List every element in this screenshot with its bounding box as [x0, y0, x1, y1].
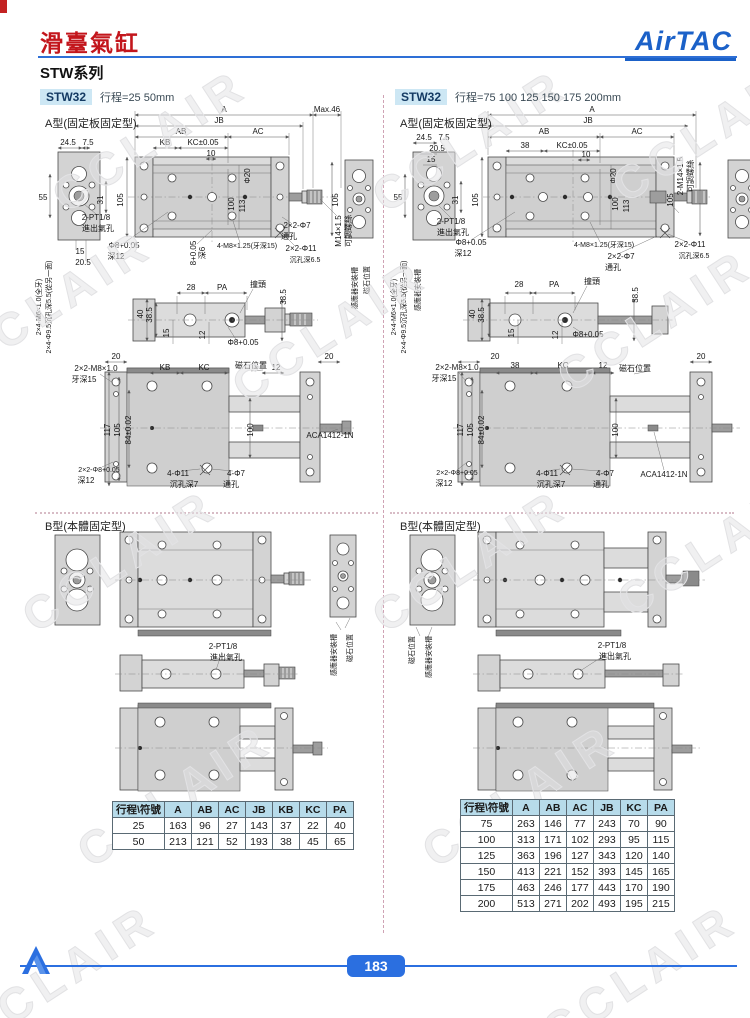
dim-label: AB	[539, 127, 550, 136]
dim-label: KC±0.05	[187, 138, 219, 147]
dim-label: AC	[631, 127, 642, 136]
dim-label: 進出氣孔	[210, 652, 242, 662]
dim-label: ACA1412-1N	[640, 470, 687, 479]
right-type-a-bottom-view	[453, 362, 740, 486]
table-cell: 65	[326, 834, 353, 850]
dim-label: 2×4-M6×1.0(全牙)	[34, 279, 43, 335]
stroke-range-right: 行程=75 100 125 150 175 200mm	[455, 92, 621, 104]
dim-label: 感應器安裝槽	[424, 636, 433, 678]
table-cell: 443	[593, 880, 620, 896]
dim-label: M14×1.5	[334, 215, 343, 247]
type-b-label-right: B型(本體固定型)	[400, 518, 481, 534]
dim-label: 牙深15	[72, 375, 97, 384]
dim-label: Φ20	[609, 168, 618, 184]
dim-label: 38	[521, 141, 530, 150]
table-cell: 145	[620, 864, 647, 880]
dim-label: 進出氣孔	[437, 227, 469, 237]
dim-label: 7.5	[438, 133, 450, 142]
dim-label: A	[221, 105, 227, 114]
dim-label: 55	[394, 193, 403, 202]
dim-label: 2-PT1/8	[437, 217, 466, 226]
table-cell: 37	[272, 818, 299, 834]
table-cell: 313	[512, 832, 539, 848]
dim-label: 感應器安裝槽	[350, 267, 359, 309]
dim-label: 2×4-Φ9.5沉孔深5.5(從另一面)	[399, 261, 408, 354]
dim-label: 28	[515, 280, 524, 289]
left-type-a-plan-view	[50, 111, 373, 261]
table-cell: 70	[620, 816, 647, 832]
dim-label: Φ8+0.05	[455, 238, 487, 247]
table-cell: 152	[566, 864, 593, 880]
dim-label: 4-Φ7	[227, 469, 245, 478]
table-cell: 143	[245, 818, 272, 834]
dim-label: 105	[466, 423, 475, 437]
table-cell: 125	[461, 848, 513, 864]
table-header-cell: JB	[593, 800, 620, 816]
table-cell: 193	[245, 834, 272, 850]
table-cell: 146	[539, 816, 566, 832]
dim-label: 20	[325, 352, 334, 361]
stroke-range-left: 行程=25 50mm	[100, 92, 174, 104]
dim-label: 10	[582, 150, 591, 159]
table-cell: 140	[647, 848, 674, 864]
table-cell: 513	[512, 896, 539, 912]
dim-label: 117	[103, 423, 112, 436]
table-cell: 95	[620, 832, 647, 848]
left-type-a-bottom-view	[100, 362, 356, 486]
dim-label: 可調螺絲	[685, 160, 695, 192]
dim-label: 可調螺絲	[343, 215, 353, 247]
dim-label: 40	[468, 309, 477, 318]
dim-label: Max.46	[314, 105, 341, 114]
table-cell: 170	[620, 880, 647, 896]
dim-label: 113	[622, 199, 631, 212]
dim-label: 117	[456, 423, 465, 436]
left-type-b-views	[55, 532, 356, 791]
dim-label: 55	[39, 193, 48, 202]
table-cell: 150	[461, 864, 513, 880]
table-cell: 293	[593, 832, 620, 848]
dim-label: 感應器安裝槽	[413, 269, 422, 311]
dim-label: 38	[511, 361, 520, 370]
dim-label: PA	[217, 283, 228, 292]
dim-label: 通孔	[605, 262, 621, 272]
table-header-cell: AC	[566, 800, 593, 816]
section-header-right: STW32行程=75 100 125 150 175 200mm	[395, 89, 621, 105]
table-header-cell: 行程\符號	[113, 802, 165, 818]
footer-logo-icon	[20, 944, 56, 976]
dim-label: 2×2-Φ8+0.05	[78, 467, 120, 474]
dim-label: 12	[551, 330, 560, 339]
table-row: 150413221152393145165	[461, 864, 675, 880]
page-corner-mark	[0, 0, 7, 13]
dim-label: 通孔	[593, 479, 609, 489]
table-cell: 393	[593, 864, 620, 880]
table-row: 175463246177443170190	[461, 880, 675, 896]
right-type-b-views	[410, 532, 705, 791]
type-a-label-right: A型(固定板固定型)	[400, 115, 492, 131]
dim-label: 2×4-Φ9.5沉孔深5.5(從另一面)	[44, 261, 53, 354]
dim-label: 24.5	[60, 138, 76, 147]
dim-label: 20.5	[75, 258, 91, 267]
dim-label: 沉孔深7	[537, 480, 566, 489]
dim-label: 沉孔深6.5	[290, 255, 321, 264]
table-cell: 463	[512, 880, 539, 896]
dim-label: 通孔	[223, 479, 239, 489]
dim-label: 深6	[198, 246, 207, 259]
table-header-cell: AC	[218, 802, 245, 818]
table-cell: 96	[191, 818, 218, 834]
table-header-cell: KC	[620, 800, 647, 816]
table-cell: 202	[566, 896, 593, 912]
table-cell: 190	[647, 880, 674, 896]
table-cell: 175	[461, 880, 513, 896]
dim-label: 2×2-Φ11	[675, 240, 706, 249]
dim-label: KC	[557, 361, 568, 370]
dim-label: 31	[451, 195, 460, 204]
dim-label: 深12	[436, 479, 453, 488]
dim-label: 105	[116, 193, 125, 207]
table-cell: 221	[539, 864, 566, 880]
dim-label: AB	[176, 127, 187, 136]
airtac-logo: AirTAC	[625, 26, 736, 61]
dim-label: 牙深15	[432, 374, 457, 383]
table-cell: 213	[164, 834, 191, 850]
table-header-cell: AB	[539, 800, 566, 816]
dim-label: 100	[227, 197, 236, 211]
dim-label: 進出氣孔	[82, 223, 114, 233]
table-header-cell: PA	[326, 802, 353, 818]
dim-label: 4-Φ11	[536, 469, 558, 478]
dim-label: 2-PT1/8	[209, 642, 238, 651]
table-cell: 102	[566, 832, 593, 848]
dim-label: JB	[583, 116, 592, 125]
table-cell: 177	[566, 880, 593, 896]
table-row: 200513271202493195215	[461, 896, 675, 912]
page-title: 滑臺氣缸	[40, 24, 140, 58]
table-cell: 271	[539, 896, 566, 912]
dim-label: A	[589, 105, 595, 114]
dim-label: 20	[697, 352, 706, 361]
dim-label: 4-Φ11	[167, 469, 189, 478]
right-type-a-elevation-view	[463, 286, 676, 344]
table-cell: 195	[620, 896, 647, 912]
dim-label: 12	[599, 361, 608, 370]
dim-label: 31	[96, 195, 105, 204]
dim-label: 磁石位置	[345, 634, 354, 662]
dim-label: 磁石位置	[235, 360, 267, 370]
dim-label: 20	[491, 352, 500, 361]
dim-label: 105	[666, 193, 675, 207]
dim-label: 4-Φ7	[596, 469, 614, 478]
dimension-table-right: 行程\符號AABACJBKCPA752631467724370901003131…	[460, 799, 675, 912]
type-a-label-left: A型(固定板固定型)	[45, 115, 137, 131]
dim-label: ACA1412-1N	[306, 431, 353, 440]
dim-label: KC	[198, 363, 209, 372]
dim-label: Φ8+0.05	[572, 330, 604, 339]
table-cell: 196	[539, 848, 566, 864]
dim-label: 通孔	[281, 231, 297, 241]
model-badge-left: STW32	[40, 89, 92, 105]
dim-label: 沉孔深7	[170, 480, 199, 489]
table-header-cell: JB	[245, 802, 272, 818]
series-label: STW系列	[40, 62, 103, 83]
section-header-left: STW32行程=25 50mm	[40, 89, 174, 105]
dim-label: PA	[549, 280, 560, 289]
dim-label: 105	[471, 193, 480, 207]
dim-label: 20.5	[429, 144, 445, 153]
dim-label: 2×2-Φ11	[286, 244, 317, 253]
table-row: 10031317110229395115	[461, 832, 675, 848]
page-number-badge: 183	[347, 955, 405, 977]
dim-label: 2-PT1/8	[598, 641, 627, 650]
dim-label: 105	[113, 423, 122, 437]
dim-label: 84±0.02	[477, 415, 486, 444]
table-header-cell: KB	[272, 802, 299, 818]
dim-label: 2-M14×1.5	[676, 156, 685, 195]
dim-label: 撞頭	[584, 276, 600, 286]
table-cell: 45	[299, 834, 326, 850]
dim-label: 8+0.05	[189, 240, 198, 265]
table-row: 251639627143372240	[113, 818, 354, 834]
table-row: 5021312152193384565	[113, 834, 354, 850]
dim-label: JB	[214, 116, 223, 125]
table-header-cell: A	[512, 800, 539, 816]
dim-label: 38.5	[477, 307, 486, 323]
dim-label: 100	[611, 197, 620, 211]
dim-label: 2×2-Φ7	[283, 221, 311, 230]
table-cell: 52	[218, 834, 245, 850]
dim-label: 20	[112, 352, 121, 361]
dim-label: 100	[611, 423, 620, 437]
table-cell: 243	[593, 816, 620, 832]
dim-label: 撞頭	[250, 279, 266, 289]
dim-label: 深12	[455, 249, 472, 258]
dim-label: Φ20	[243, 168, 252, 184]
dim-label: 4-M8×1.25(牙深15)	[574, 240, 634, 249]
table-header-cell: 行程\符號	[461, 800, 513, 816]
table-cell: 171	[539, 832, 566, 848]
table-header-cell: A	[164, 802, 191, 818]
dim-label: 磁石位置	[407, 636, 416, 664]
table-cell: 413	[512, 864, 539, 880]
dim-label: 15	[76, 247, 85, 256]
dim-label: 24.5	[416, 133, 432, 142]
catalog-page: CCLAIRCCLAIRCCLAIRCCLAIRCCLAIRCCLAIRCCLA…	[0, 0, 750, 1018]
dim-label: 15	[162, 328, 171, 337]
table-cell: 27	[218, 818, 245, 834]
dim-label: 15	[507, 328, 516, 337]
dim-label: 105	[331, 193, 340, 207]
dim-label: 深12	[78, 476, 95, 485]
table-cell: 115	[647, 832, 674, 848]
dim-label: 38.5	[631, 287, 640, 303]
table-cell: 121	[191, 834, 218, 850]
table-header-cell: AB	[191, 802, 218, 818]
dim-label: KC±0.05	[556, 141, 588, 150]
dim-label: 12	[272, 363, 281, 372]
table-row: 125363196127343120140	[461, 848, 675, 864]
dim-label: 15	[427, 155, 436, 164]
table-cell: 75	[461, 816, 513, 832]
dim-label: 113	[238, 199, 247, 212]
table-cell: 200	[461, 896, 513, 912]
dim-label: 7.5	[82, 138, 94, 147]
dim-label: 進出氣孔	[599, 651, 631, 661]
dim-label: Φ8+0.05	[108, 241, 140, 250]
dim-label: 2×2-Φ7	[607, 252, 635, 261]
table-cell: 120	[620, 848, 647, 864]
table-cell: 100	[461, 832, 513, 848]
table-cell: 77	[566, 816, 593, 832]
table-cell: 263	[512, 816, 539, 832]
table-cell: 40	[326, 818, 353, 834]
dim-label: KB	[160, 138, 171, 147]
dim-label: 100	[246, 423, 255, 437]
dim-label: 2×2-M8×1.0	[435, 363, 479, 372]
table-row: 75263146772437090	[461, 816, 675, 832]
dim-label: 感應器安裝槽	[329, 634, 338, 676]
dim-label: Φ8+0.05	[227, 338, 259, 347]
table-cell: 493	[593, 896, 620, 912]
model-badge-right: STW32	[395, 89, 447, 105]
dimension-table-left: 行程\符號AABACJBKBKCPA2516396271433722405021…	[112, 801, 354, 850]
type-b-label-left: B型(本體固定型)	[45, 518, 126, 534]
table-header-cell: KC	[299, 802, 326, 818]
dim-label: 84±0.02	[124, 415, 133, 444]
table-cell: 363	[512, 848, 539, 864]
table-cell: 50	[113, 834, 165, 850]
dim-label: 38.5	[145, 307, 154, 323]
dim-label: 2×2-Φ8+0.05	[436, 470, 478, 477]
dim-label: 沉孔深6.5	[679, 251, 710, 260]
table-cell: 215	[647, 896, 674, 912]
table-cell: 127	[566, 848, 593, 864]
dim-label: KB	[160, 363, 171, 372]
table-cell: 165	[647, 864, 674, 880]
table-cell: 246	[539, 880, 566, 896]
dim-label: AC	[252, 127, 263, 136]
table-cell: 38	[272, 834, 299, 850]
table-header-cell: PA	[647, 800, 674, 816]
dim-label: 磁石位置	[362, 266, 371, 294]
dim-label: 38.5	[279, 289, 288, 305]
dim-label: 40	[136, 309, 145, 318]
table-cell: 343	[593, 848, 620, 864]
dim-label: 2×4-M6×1.0(全牙)	[389, 279, 398, 335]
dim-label: 12	[198, 330, 207, 339]
dim-label: 28	[187, 283, 196, 292]
table-cell: 90	[647, 816, 674, 832]
dim-label: 10	[207, 149, 216, 158]
dim-label: 磁石位置	[619, 363, 651, 373]
table-cell: 25	[113, 818, 165, 834]
table-cell: 22	[299, 818, 326, 834]
dim-label: 4-M8×1.25(牙深15)	[217, 241, 277, 250]
dim-label: 2-PT1/8	[82, 213, 111, 222]
dim-label: 2×2-M8×1.0	[74, 364, 118, 373]
left-type-a-elevation-view	[128, 289, 318, 344]
table-cell: 163	[164, 818, 191, 834]
dim-label: 深12	[108, 252, 125, 261]
